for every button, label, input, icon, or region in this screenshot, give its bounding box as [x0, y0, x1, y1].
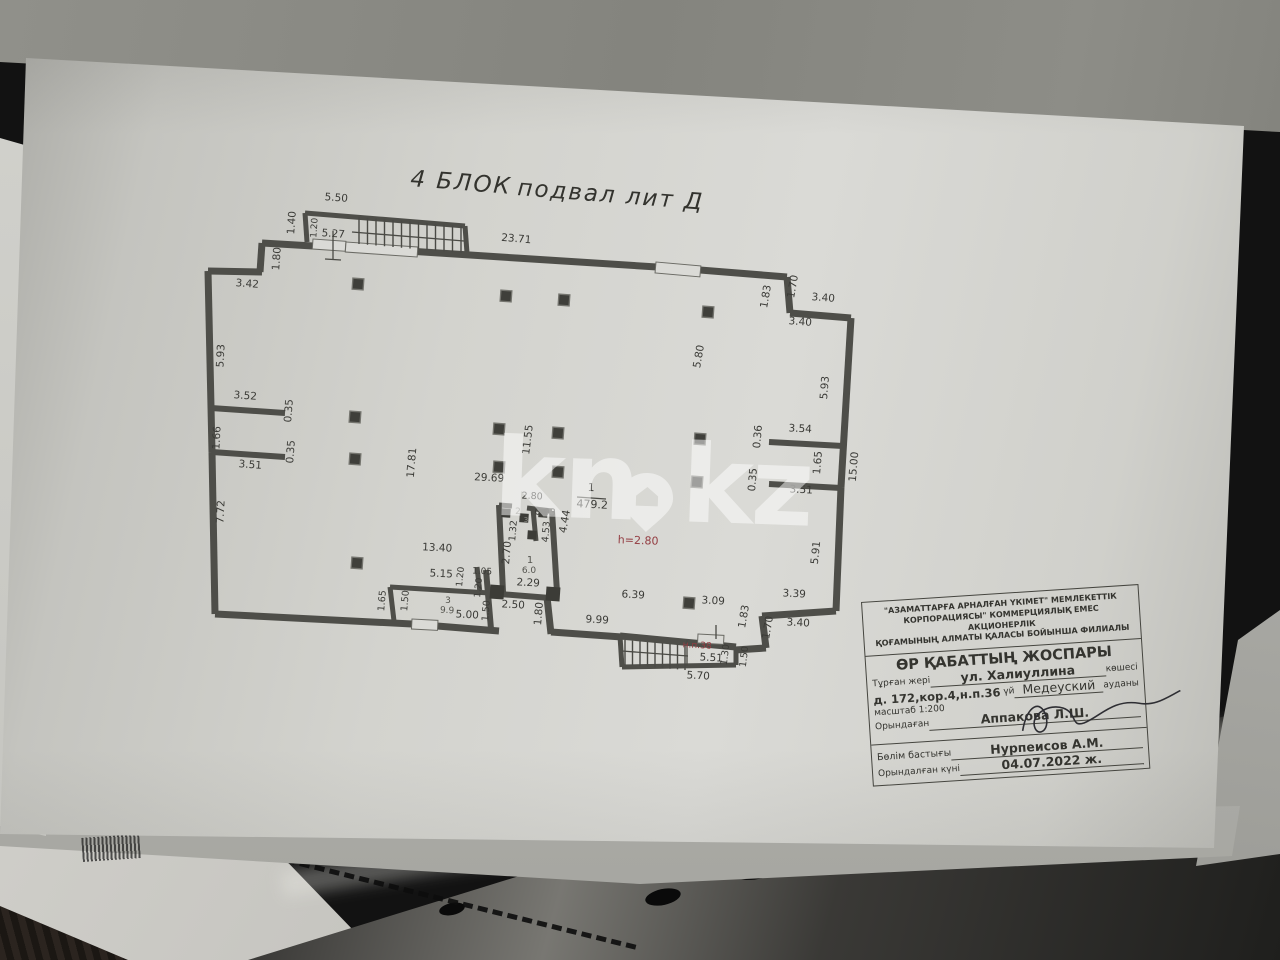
executor-label: Орындаған — [875, 719, 930, 734]
dim-label: 13.40 — [422, 541, 453, 555]
wall-segment — [260, 243, 262, 272]
wall-segment — [215, 614, 412, 624]
dim-label: 1.20 — [455, 566, 467, 587]
dim-label: 3.52 — [233, 389, 257, 403]
column — [351, 557, 363, 569]
dim-label: 1.65 — [376, 590, 389, 612]
dim-label: 1.50 — [480, 600, 493, 622]
wall-segment — [700, 270, 787, 277]
dim-label: 3.40 — [786, 616, 810, 629]
wall-segment — [262, 243, 313, 246]
column — [683, 597, 695, 609]
wall-segment — [836, 487, 841, 611]
dim-label: 3 — [445, 596, 451, 606]
plan-title-floor: подвал лит Д — [517, 175, 705, 216]
dim-label: 1.40 — [285, 211, 299, 235]
wall-segment — [212, 452, 285, 457]
wall-segment — [212, 452, 215, 614]
wall-opening — [345, 242, 418, 257]
guide-line — [325, 259, 341, 260]
dim-label: 1.20 — [309, 217, 320, 238]
dim-label: 5.91 — [809, 540, 823, 565]
dim-label: 2.70 — [500, 541, 514, 565]
dim-label: 6.0 — [522, 566, 537, 576]
dim-label: 3.39 — [782, 587, 806, 600]
wall-segment — [620, 636, 622, 667]
street-suffix: көшесі — [1105, 662, 1138, 676]
dim-label: 7.72 — [214, 500, 227, 524]
dim-label: 1 — [527, 555, 533, 566]
wall-segment — [390, 587, 394, 621]
column — [558, 294, 570, 306]
wall-segment — [551, 632, 622, 637]
dim-label: 3.09 — [701, 594, 725, 607]
wall-segment — [762, 611, 836, 616]
watermark-kz: kz — [679, 422, 814, 551]
dim-label: 1.50 — [738, 646, 751, 668]
signature — [1016, 680, 1190, 751]
dim-label: н.п.38 — [682, 640, 712, 652]
dim-label: 6.39 — [621, 588, 645, 601]
plan-title-block-number: 4 БЛОК — [410, 166, 513, 200]
title-block: "АЗАМАТТАРҒА АРНАЛҒАН ҮКІМЕТ" МЕМЛЕКЕТТІ… — [861, 584, 1150, 787]
dim-label: 5.93 — [818, 376, 832, 400]
column — [500, 290, 512, 302]
dim-label: 0.35 — [282, 399, 296, 423]
wall-segment — [547, 597, 551, 634]
dim-label: 3.42 — [235, 277, 259, 291]
guide-line — [352, 232, 464, 241]
column — [349, 453, 361, 465]
dim-label: 2.50 — [501, 598, 525, 611]
wall-segment — [208, 271, 262, 272]
dim-label: 3.40 — [788, 315, 812, 329]
dim-label: 9.9 — [440, 606, 455, 617]
dim-label: 5.27 — [321, 227, 345, 241]
wall-pier — [490, 585, 505, 600]
dim-label: 3.40 — [811, 291, 835, 305]
floor-plan-drawing: 4 БЛОК подвал лит Д 5.501.401.205.271.80… — [0, 0, 1280, 960]
dim-label: 17.81 — [405, 447, 420, 478]
dim-label: 1.80 — [532, 602, 546, 626]
column — [349, 411, 361, 423]
dim-label: 1.20 — [473, 577, 485, 598]
watermark-kn: kn — [491, 416, 640, 546]
dim-label: 9.99 — [585, 613, 609, 626]
dim-label: 1.83 — [736, 604, 752, 629]
kn-kz-watermark: kn kz — [491, 416, 814, 552]
dim-label: 5.00 — [455, 608, 479, 621]
wall-opening — [411, 619, 437, 630]
wall-opening — [655, 262, 701, 277]
dim-label: 5.93 — [214, 344, 227, 368]
wall-segment — [465, 226, 467, 253]
dim-label: 5.80 — [691, 344, 707, 369]
wall-segment — [211, 408, 285, 413]
dim-label: 15.00 — [847, 451, 862, 482]
wall-pier — [546, 587, 561, 602]
dim-label: 5.70 — [686, 669, 710, 682]
dim-label: 1.50 — [399, 590, 412, 612]
dim-label: 5.50 — [324, 191, 348, 205]
wall-segment — [208, 271, 212, 452]
dim-label: 1.80 — [270, 247, 284, 271]
dim-label: 1.66 — [210, 426, 223, 450]
dim-label: 5.15 — [429, 567, 453, 580]
wall-segment — [305, 213, 307, 242]
house-suffix: үй — [1003, 686, 1015, 699]
column — [352, 278, 364, 290]
dim-label: 23.71 — [501, 232, 532, 247]
date-label: Орындалған күні — [878, 764, 961, 781]
dim-label: 1.05 — [472, 566, 493, 577]
dim-label: 0.35 — [284, 440, 298, 464]
dim-label: 2.29 — [516, 576, 540, 589]
dim-label: 1.83 — [758, 284, 774, 309]
wall-opening — [312, 239, 346, 251]
photo-of-floor-plan-document: 4 БЛОК подвал лит Д 5.501.401.205.271.80… — [0, 0, 1280, 960]
column — [702, 306, 714, 318]
dim-label: 1.30 — [719, 644, 732, 666]
dim-label: 3.51 — [238, 458, 262, 472]
wall-segment — [500, 594, 550, 598]
